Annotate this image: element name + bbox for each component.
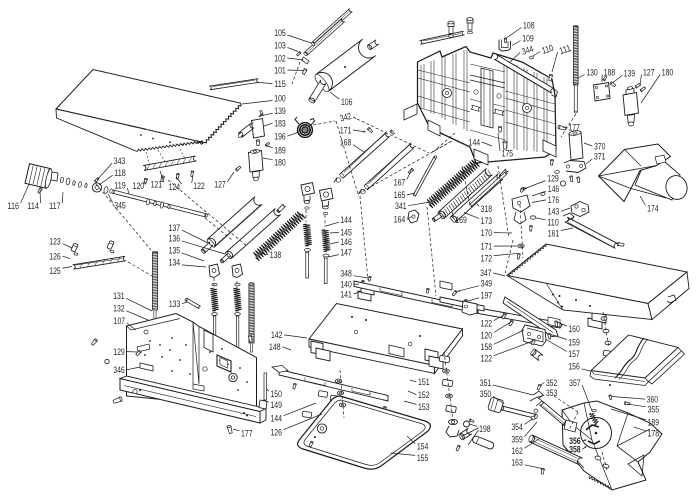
svg-text:105: 105	[274, 28, 286, 38]
svg-text:343: 343	[114, 156, 126, 166]
svg-text:101: 101	[274, 65, 286, 75]
svg-text:198: 198	[479, 424, 491, 434]
svg-text:196: 196	[274, 132, 286, 142]
svg-text:351: 351	[480, 378, 492, 388]
svg-text:122: 122	[481, 354, 493, 364]
svg-text:126: 126	[270, 428, 282, 438]
svg-text:116: 116	[8, 201, 20, 211]
svg-text:188: 188	[604, 67, 616, 77]
svg-text:146: 146	[340, 237, 352, 247]
svg-text:146: 146	[548, 184, 560, 194]
svg-text:346: 346	[113, 365, 125, 375]
svg-text:134: 134	[169, 258, 181, 268]
svg-text:162: 162	[511, 446, 523, 456]
svg-text:157: 157	[568, 349, 580, 359]
svg-text:177: 177	[568, 122, 580, 132]
svg-text:137: 137	[169, 223, 181, 233]
svg-text:144: 144	[340, 215, 352, 225]
svg-text:153: 153	[418, 402, 430, 412]
svg-text:180: 180	[662, 67, 674, 77]
svg-text:144: 144	[270, 414, 282, 424]
svg-text:161: 161	[548, 228, 560, 238]
svg-text:143: 143	[548, 207, 560, 217]
svg-text:122: 122	[193, 181, 205, 191]
svg-text:119: 119	[114, 181, 126, 191]
svg-text:165: 165	[394, 190, 406, 200]
svg-text:164: 164	[394, 215, 406, 225]
svg-text:152: 152	[418, 390, 430, 400]
svg-text:371: 371	[594, 152, 606, 162]
svg-text:160: 160	[568, 324, 580, 334]
svg-text:130: 130	[586, 67, 598, 77]
svg-text:120: 120	[481, 330, 493, 340]
svg-text:107: 107	[114, 316, 126, 326]
svg-text:159: 159	[568, 337, 580, 347]
svg-text:115: 115	[274, 79, 286, 89]
svg-text:106: 106	[341, 97, 353, 107]
svg-text:148: 148	[269, 342, 281, 352]
svg-text:156: 156	[568, 362, 580, 372]
svg-text:129: 129	[113, 347, 125, 357]
svg-text:154: 154	[417, 442, 429, 452]
svg-text:109: 109	[522, 33, 534, 43]
svg-text:132: 132	[113, 304, 125, 314]
svg-text:114: 114	[27, 201, 39, 211]
svg-text:357: 357	[569, 378, 581, 388]
svg-text:359: 359	[511, 434, 523, 444]
svg-text:176: 176	[548, 195, 560, 205]
svg-text:129: 129	[547, 173, 559, 183]
svg-text:174: 174	[647, 203, 659, 213]
svg-text:178: 178	[648, 429, 660, 439]
svg-text:126: 126	[49, 251, 61, 261]
svg-text:173: 173	[481, 216, 493, 226]
svg-text:151: 151	[418, 377, 430, 387]
svg-text:349: 349	[481, 279, 493, 289]
svg-text:124: 124	[169, 182, 181, 192]
svg-text:118: 118	[114, 168, 126, 178]
svg-text:149: 149	[270, 400, 282, 410]
svg-text:150: 150	[270, 389, 282, 399]
svg-text:108: 108	[523, 20, 535, 30]
svg-text:175: 175	[502, 149, 514, 159]
svg-text:144: 144	[469, 137, 481, 147]
svg-text:171: 171	[340, 125, 352, 135]
svg-text:100: 100	[274, 93, 286, 103]
svg-text:189: 189	[274, 146, 286, 156]
svg-text:127: 127	[214, 180, 226, 190]
svg-text:197: 197	[481, 291, 493, 301]
svg-text:131: 131	[113, 291, 125, 301]
svg-text:345: 345	[114, 200, 126, 210]
svg-text:360: 360	[647, 394, 659, 404]
svg-text:350: 350	[480, 389, 492, 399]
svg-text:139: 139	[274, 106, 286, 116]
svg-text:347: 347	[480, 268, 492, 278]
svg-text:167: 167	[394, 177, 406, 187]
svg-text:370: 370	[594, 141, 606, 151]
svg-text:341: 341	[395, 201, 407, 211]
svg-text:163: 163	[511, 458, 523, 468]
svg-text:189: 189	[648, 418, 660, 428]
svg-text:139: 139	[624, 68, 636, 78]
svg-text:158: 158	[481, 342, 493, 352]
svg-text:353: 353	[546, 388, 558, 398]
svg-text:110: 110	[547, 218, 559, 228]
svg-text:318: 318	[481, 204, 493, 214]
svg-text:136: 136	[169, 234, 181, 244]
svg-text:123: 123	[49, 236, 61, 246]
svg-text:170: 170	[481, 228, 493, 238]
svg-text:103: 103	[274, 40, 286, 50]
svg-text:127: 127	[643, 67, 655, 77]
svg-text:135: 135	[169, 246, 181, 256]
svg-text:141: 141	[340, 289, 352, 299]
svg-text:102: 102	[274, 53, 286, 63]
svg-text:177: 177	[241, 429, 253, 439]
svg-text:133: 133	[169, 299, 181, 309]
svg-text:120: 120	[133, 181, 145, 191]
svg-text:171: 171	[481, 241, 493, 251]
svg-text:169: 169	[455, 215, 467, 225]
svg-text:358: 358	[569, 445, 581, 455]
svg-text:352: 352	[546, 378, 558, 388]
svg-text:125: 125	[49, 266, 61, 276]
svg-text:355: 355	[648, 405, 660, 415]
svg-text:122: 122	[481, 318, 493, 328]
svg-text:147: 147	[340, 247, 352, 257]
svg-text:180: 180	[274, 158, 286, 168]
svg-text:117: 117	[49, 201, 61, 211]
svg-text:168: 168	[340, 138, 352, 148]
svg-text:155: 155	[417, 453, 429, 463]
svg-text:138: 138	[270, 250, 282, 260]
svg-text:348: 348	[340, 269, 352, 279]
svg-text:142: 142	[271, 330, 283, 340]
svg-text:121: 121	[151, 180, 163, 190]
svg-text:140: 140	[340, 280, 352, 290]
svg-text:172: 172	[481, 253, 493, 263]
svg-text:354: 354	[511, 422, 523, 432]
svg-text:145: 145	[340, 228, 352, 238]
svg-text:183: 183	[274, 119, 286, 129]
